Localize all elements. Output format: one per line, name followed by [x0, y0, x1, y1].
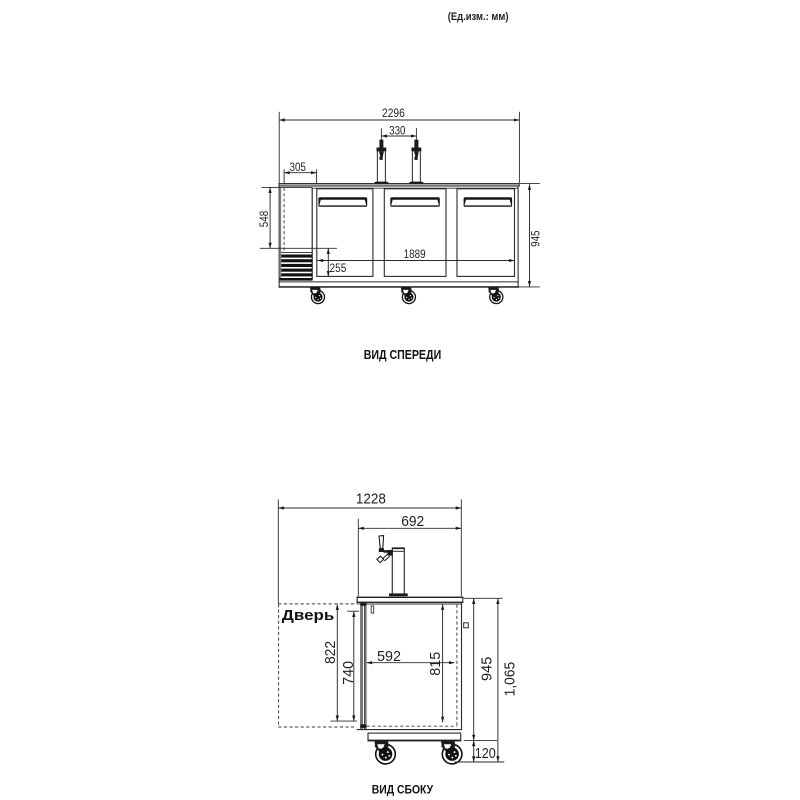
svg-text:305: 305: [289, 160, 306, 174]
svg-text:1228: 1228: [356, 492, 386, 508]
svg-text:822: 822: [323, 641, 339, 664]
svg-text:548: 548: [257, 210, 271, 227]
svg-text:120: 120: [475, 746, 496, 762]
svg-text:692: 692: [401, 514, 424, 530]
svg-text:945: 945: [529, 230, 543, 247]
svg-text:592: 592: [377, 649, 401, 665]
svg-text:945: 945: [479, 657, 495, 681]
svg-text:740: 740: [341, 661, 357, 685]
svg-text:815: 815: [428, 652, 444, 676]
svg-text:1,065: 1,065: [502, 662, 518, 697]
svg-text:330: 330: [389, 123, 406, 137]
svg-text:255: 255: [330, 261, 347, 275]
svg-text:Дверь: Дверь: [282, 607, 335, 624]
svg-text:ВИД СБОКУ: ВИД СБОКУ: [372, 782, 434, 796]
svg-text:(Ед.изм.: мм): (Ед.изм.: мм): [448, 11, 509, 23]
svg-text:ВИД СПЕРЕДИ: ВИД СПЕРЕДИ: [364, 347, 442, 362]
svg-text:1889: 1889: [404, 247, 426, 261]
svg-text:2296: 2296: [382, 106, 405, 120]
